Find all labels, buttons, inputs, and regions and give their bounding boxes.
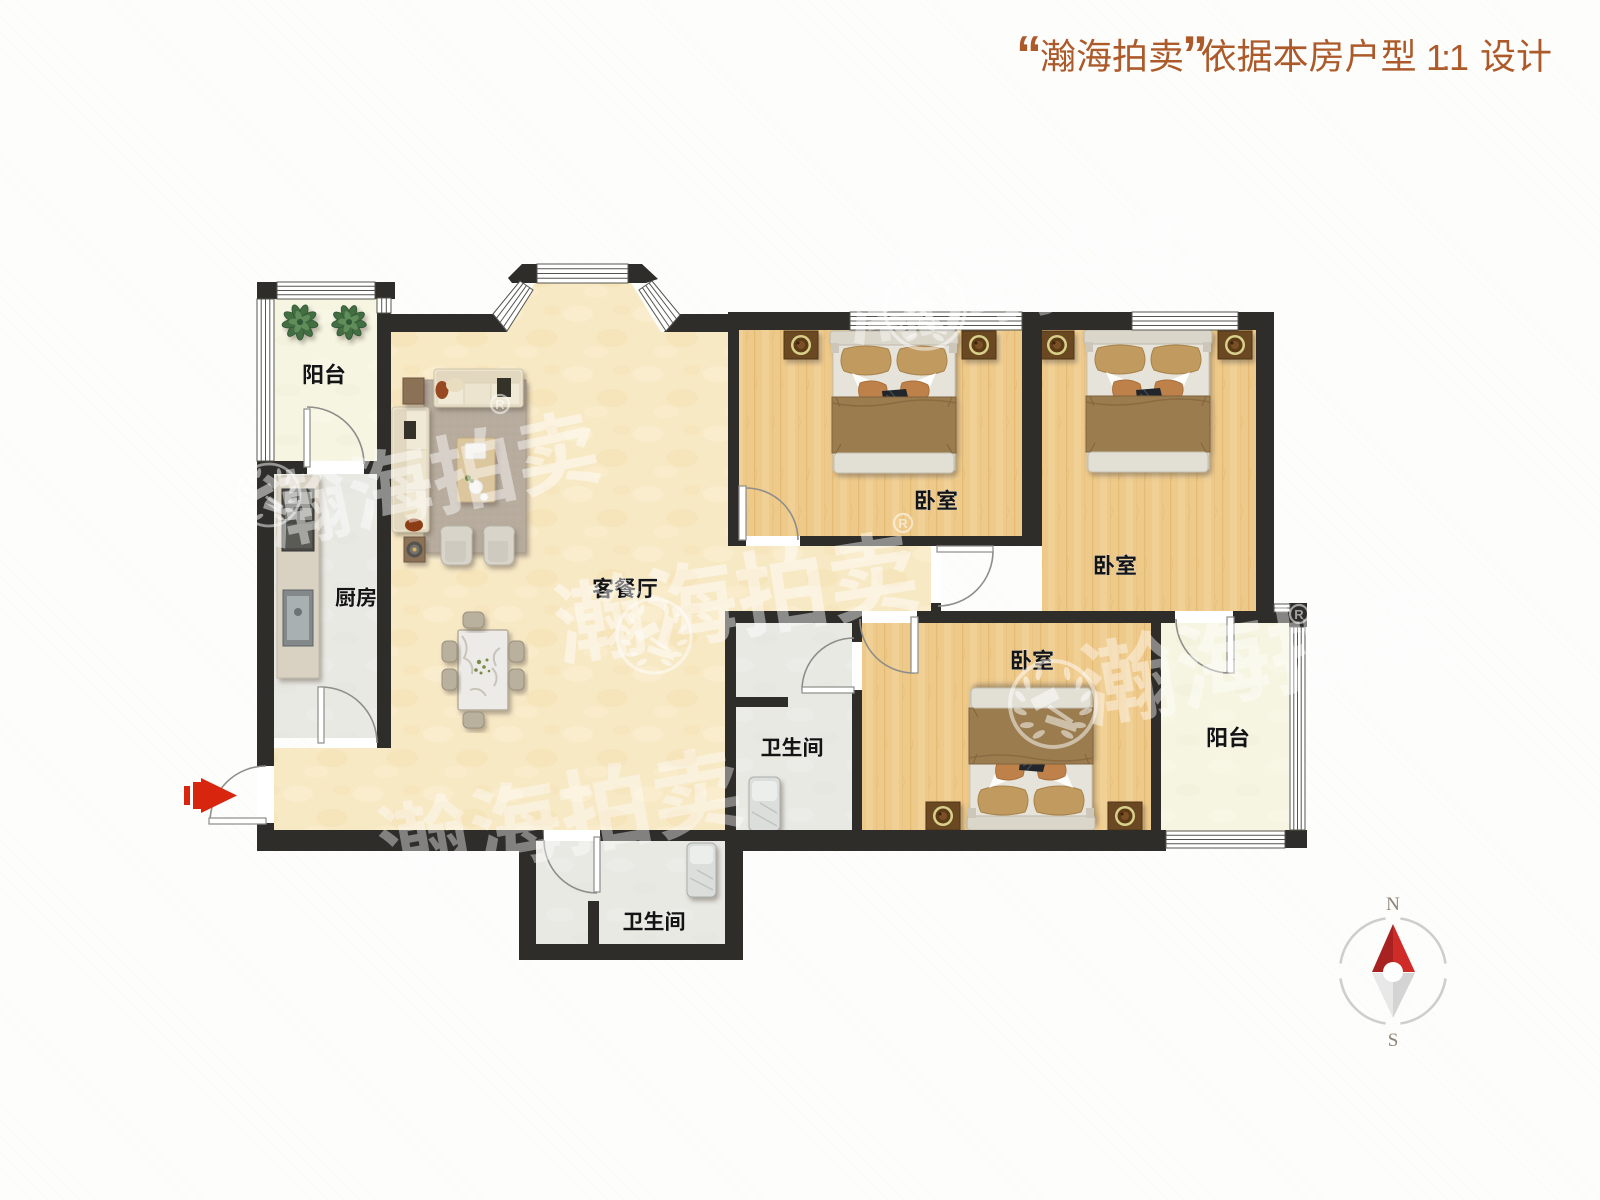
svg-text:“: “ — [1016, 26, 1042, 84]
svg-text:S: S — [1388, 1030, 1399, 1051]
svg-text:1: 1 — [1449, 37, 1469, 78]
svg-text:”: ” — [1182, 26, 1208, 84]
svg-text:R: R — [495, 397, 505, 412]
svg-text:R: R — [1294, 607, 1304, 622]
svg-text:R: R — [898, 516, 908, 531]
svg-text:N: N — [1386, 894, 1400, 915]
